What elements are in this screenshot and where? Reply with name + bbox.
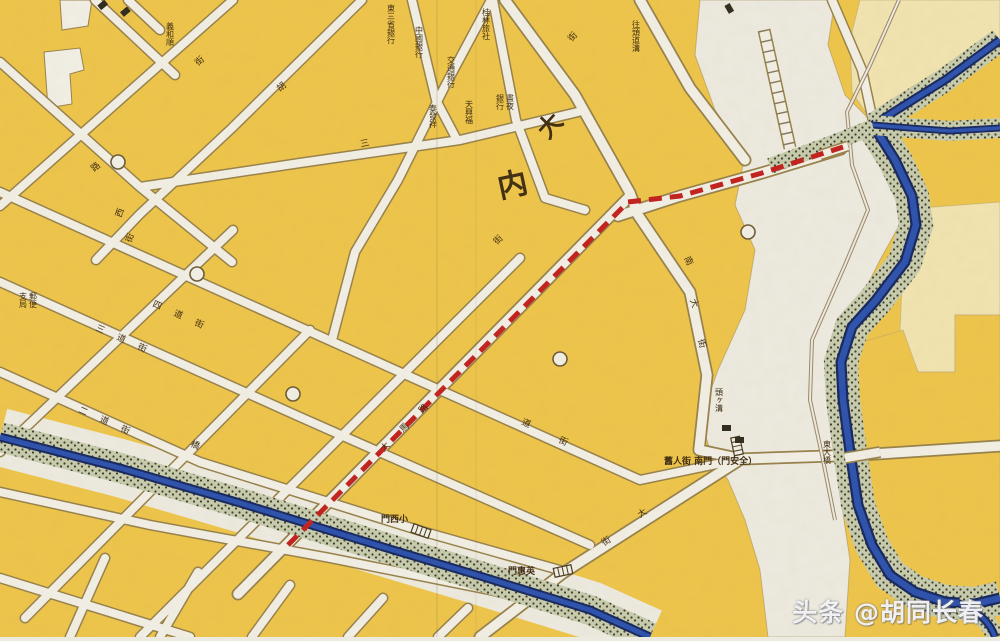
gate-label: 門西小	[381, 513, 408, 525]
business-label: 桂林旅社	[482, 7, 491, 41]
historical-city-map: 街三四道街三道街二道街道街大馬路街南大街西街橋大街街路胡義和順東三省銀行中國銀行…	[0, 0, 1000, 637]
business-label: 郵便	[29, 291, 38, 309]
business-label: 交通銀行	[447, 55, 456, 89]
business-label: 銀行	[496, 93, 505, 111]
business-label: 東三省銀行	[387, 3, 396, 45]
landmark-circle	[111, 155, 125, 169]
business-label: 天興福	[465, 100, 474, 125]
watermark: 头条 @胡同长春	[792, 593, 984, 629]
landmark-circle	[190, 267, 204, 281]
business-label: 義和順	[166, 21, 175, 47]
business-label: 往頭道溝	[632, 19, 641, 53]
business-label: 支局	[19, 291, 28, 309]
business-label: 頭ヶ溝	[715, 388, 724, 413]
gate-label: 舊人街 南門（門安全）	[664, 455, 757, 467]
river-branch-east	[873, 125, 1000, 131]
landmark-circle	[553, 352, 567, 366]
business-label: 中國銀行	[415, 25, 424, 59]
gate-label: 門惠英	[508, 565, 536, 577]
business-label: 東大橋	[823, 439, 832, 465]
business-label: 晝夜	[506, 93, 515, 111]
landmark-circle	[741, 225, 755, 239]
business-label: 泰發祥	[429, 103, 438, 129]
landmark-circle	[286, 387, 300, 401]
map-svg: 街三四道街三道街二道街道街大馬路街南大街西街橋大街街路胡義和順東三省銀行中國銀行…	[0, 0, 1000, 637]
parcel	[60, 0, 92, 30]
